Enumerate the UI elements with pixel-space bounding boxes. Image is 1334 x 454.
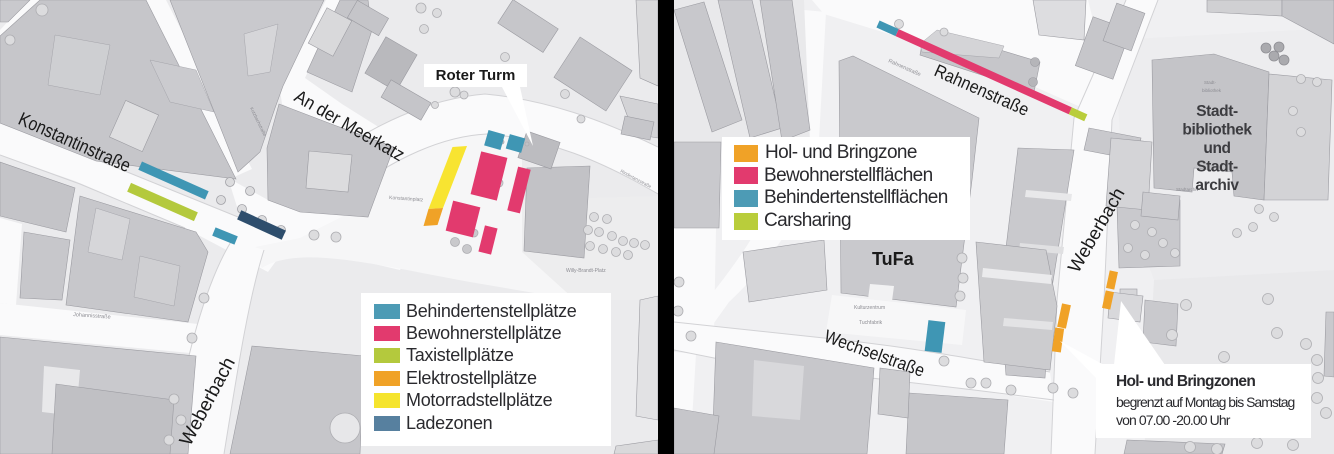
svg-text:archiv: archiv xyxy=(1195,177,1239,194)
svg-text:bibliothek: bibliothek xyxy=(1202,88,1222,93)
svg-text:Stadt-: Stadt- xyxy=(1196,159,1238,176)
svg-text:TuFa: TuFa xyxy=(872,249,915,269)
svg-text:Stadt-: Stadt- xyxy=(1204,80,1217,85)
svg-text:bibliothek: bibliothek xyxy=(1182,122,1252,139)
svg-text:Tuchfabrik: Tuchfabrik xyxy=(859,320,883,326)
svg-text:Willy-Brandt-Platz: Willy-Brandt-Platz xyxy=(566,268,606,274)
svg-text:Stadt-: Stadt- xyxy=(1196,103,1238,120)
svg-text:und: und xyxy=(1203,140,1230,157)
svg-text:Stadtarchiv: Stadtarchiv xyxy=(1176,187,1199,192)
svg-text:Kulturzentrum: Kulturzentrum xyxy=(854,305,885,311)
